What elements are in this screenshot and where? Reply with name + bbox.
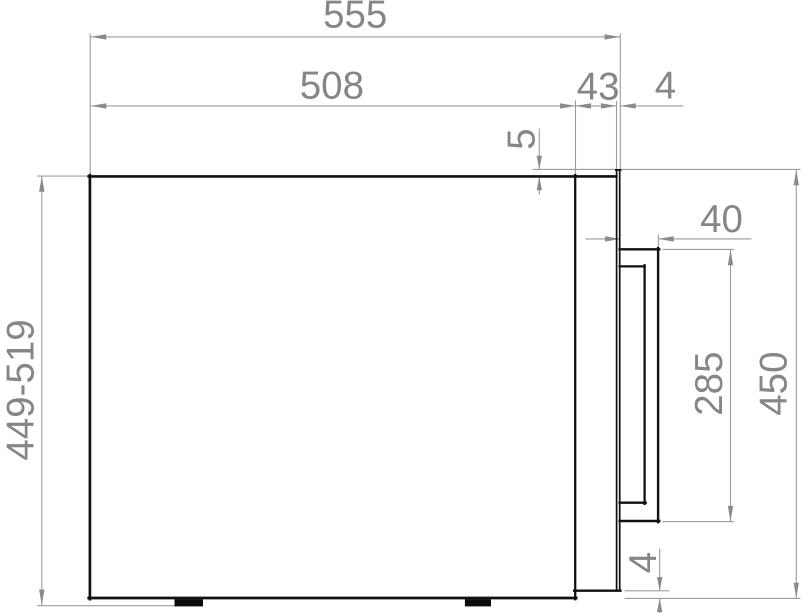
svg-text:4: 4 — [655, 65, 676, 108]
svg-text:449-519: 449-519 — [0, 319, 42, 460]
svg-text:40: 40 — [700, 198, 743, 241]
svg-text:4: 4 — [622, 552, 665, 573]
svg-text:450: 450 — [753, 351, 796, 415]
svg-text:285: 285 — [688, 351, 731, 415]
svg-text:508: 508 — [300, 65, 364, 108]
svg-text:555: 555 — [323, 0, 387, 37]
svg-text:43: 43 — [577, 66, 620, 109]
svg-text:5: 5 — [501, 128, 544, 149]
